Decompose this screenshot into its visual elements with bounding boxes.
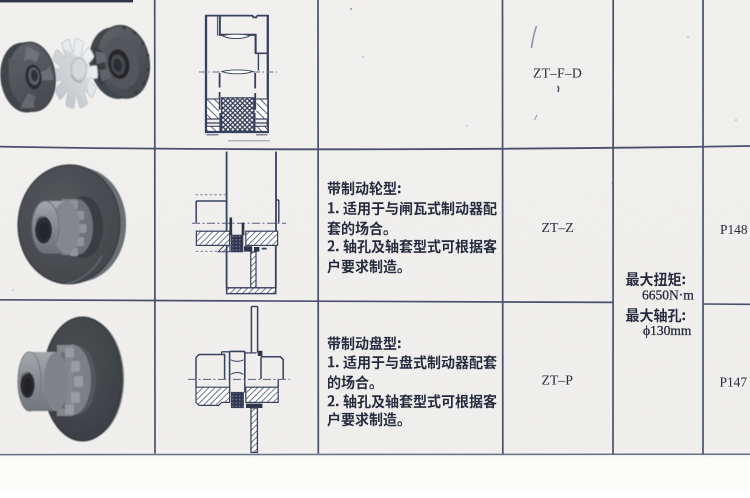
svg-text:P147: P147 <box>720 375 748 390</box>
svg-text:P148: P148 <box>720 222 748 237</box>
svg-text:ZT–P: ZT–P <box>542 373 574 388</box>
svg-text:ϕ130mm: ϕ130mm <box>643 323 692 338</box>
svg-text:ZT–F–D: ZT–F–D <box>533 66 582 81</box>
svg-text:ZT–Z: ZT–Z <box>542 220 574 235</box>
svg-text:6650N·m: 6650N·m <box>642 287 694 302</box>
